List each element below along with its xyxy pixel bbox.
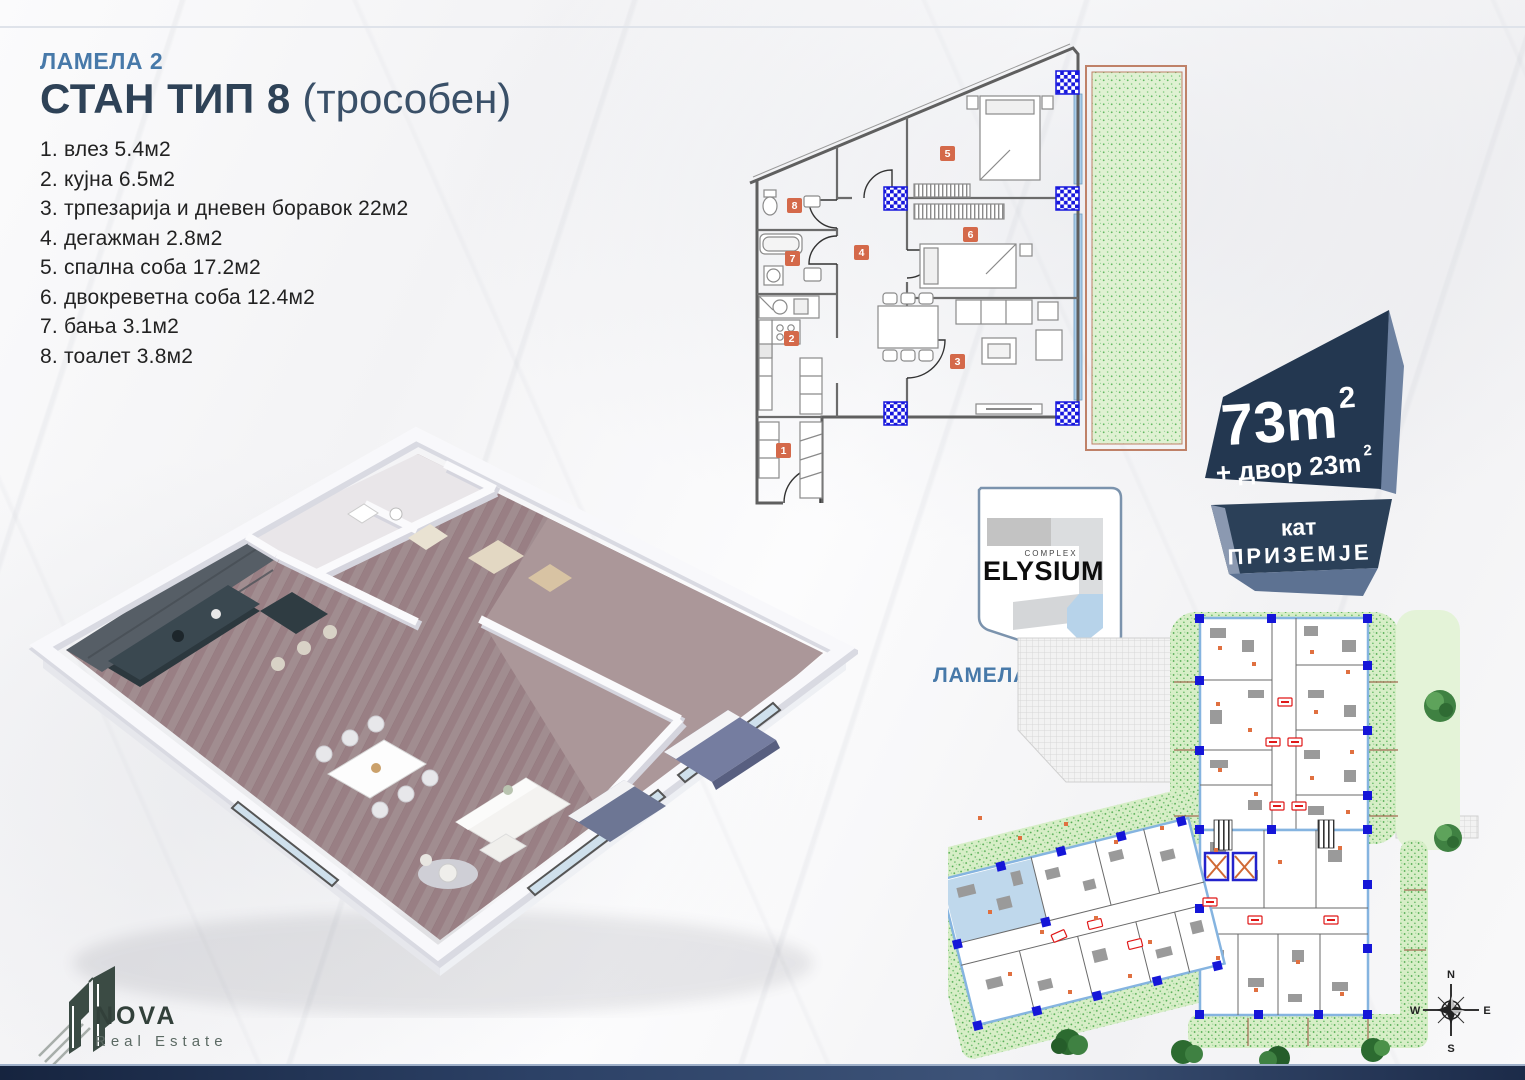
- room-list-item: 5. спална соба 17.2м2: [40, 256, 408, 280]
- kitchen-furniture: [759, 296, 822, 414]
- bottom-gradient-bar: [0, 1064, 1525, 1080]
- floor-label: кат: [1280, 513, 1316, 540]
- area-badge: 73m 2 + двор 23m 2 кат ПРИЗЕМЈЕ: [1193, 308, 1408, 603]
- nova-name-text: NOVA: [95, 1002, 177, 1030]
- room-marker: 7: [785, 251, 800, 266]
- room-marker: 4: [854, 245, 869, 260]
- room-marker: 6: [963, 227, 978, 242]
- room-list-item: 4. дегажман 2.8м2: [40, 227, 408, 251]
- nova-tagline-text: Real Estate: [95, 1033, 228, 1050]
- room-marker-number: 3: [955, 356, 961, 368]
- room-marker-number: 2: [789, 333, 795, 345]
- staircase: [1318, 820, 1334, 848]
- site-plan: N E S W: [948, 610, 1525, 1072]
- room-marker-number: 6: [968, 229, 974, 241]
- header: ЛАМЕЛА 2 СТАН ТИП 8 (трособен): [40, 48, 511, 121]
- isometric-render-3d: [28, 418, 858, 1018]
- building-lower-block: [1200, 820, 1368, 1015]
- room-marker: 8: [787, 198, 802, 213]
- room-marker-number: 5: [945, 148, 951, 160]
- compass-e: E: [1483, 1005, 1490, 1017]
- compass-s: S: [1447, 1043, 1454, 1055]
- room-marker: 3: [950, 354, 965, 369]
- room-list-item: 8. тоалет 3.8м2: [40, 345, 408, 369]
- compass-n: N: [1447, 969, 1455, 981]
- room-list-item: 3. трпезарија и дневен боравок 22м2: [40, 197, 408, 221]
- page-title: СТАН ТИП 8 (трособен): [40, 77, 511, 121]
- room-list-item: 2. кујна 6.5м2: [40, 168, 408, 192]
- room-marker-number: 8: [792, 200, 798, 212]
- garden-area: [1086, 66, 1186, 450]
- room-marker: 5: [940, 146, 955, 161]
- lamela-label: ЛАМЕЛА 2: [40, 48, 511, 75]
- room-list: 1. влез 5.4м2 2. кујна 6.5м2 3. трпезари…: [40, 138, 408, 374]
- nova-logo: NOVA Real Estate: [35, 962, 275, 1067]
- compass-w: W: [1410, 1005, 1421, 1017]
- bedroom-furniture: [914, 96, 1053, 197]
- room-marker-number: 4: [859, 247, 865, 259]
- logo-name-text: ELYSIUM: [983, 556, 1104, 586]
- area-value: 73m: [1219, 385, 1339, 458]
- floor-value: ПРИЗЕМЈЕ: [1227, 539, 1372, 569]
- room-marker-number: 7: [790, 253, 796, 265]
- bedroom2-furniture: [914, 204, 1032, 288]
- living-furniture: [878, 293, 1062, 414]
- building-top-wing: [1200, 618, 1368, 830]
- apartment-type-subtitle: (трособен): [291, 75, 512, 122]
- slide: ЛАМЕЛА 2 СТАН ТИП 8 (трособен) 1. влез 5…: [0, 0, 1525, 1080]
- room-list-item: 1. влез 5.4м2: [40, 138, 408, 162]
- apartment-type-title: СТАН ТИП 8: [40, 75, 291, 122]
- top-gradient-bar: [0, 0, 1525, 28]
- room-list-item: 7. бања 3.1м2: [40, 315, 408, 339]
- staircase: [1214, 820, 1232, 850]
- room-marker: 2: [784, 331, 799, 346]
- area-superscript: 2: [1338, 381, 1357, 415]
- room-list-item: 6. двокреветна соба 12.4м2: [40, 286, 408, 310]
- yard-superscript: 2: [1363, 442, 1373, 460]
